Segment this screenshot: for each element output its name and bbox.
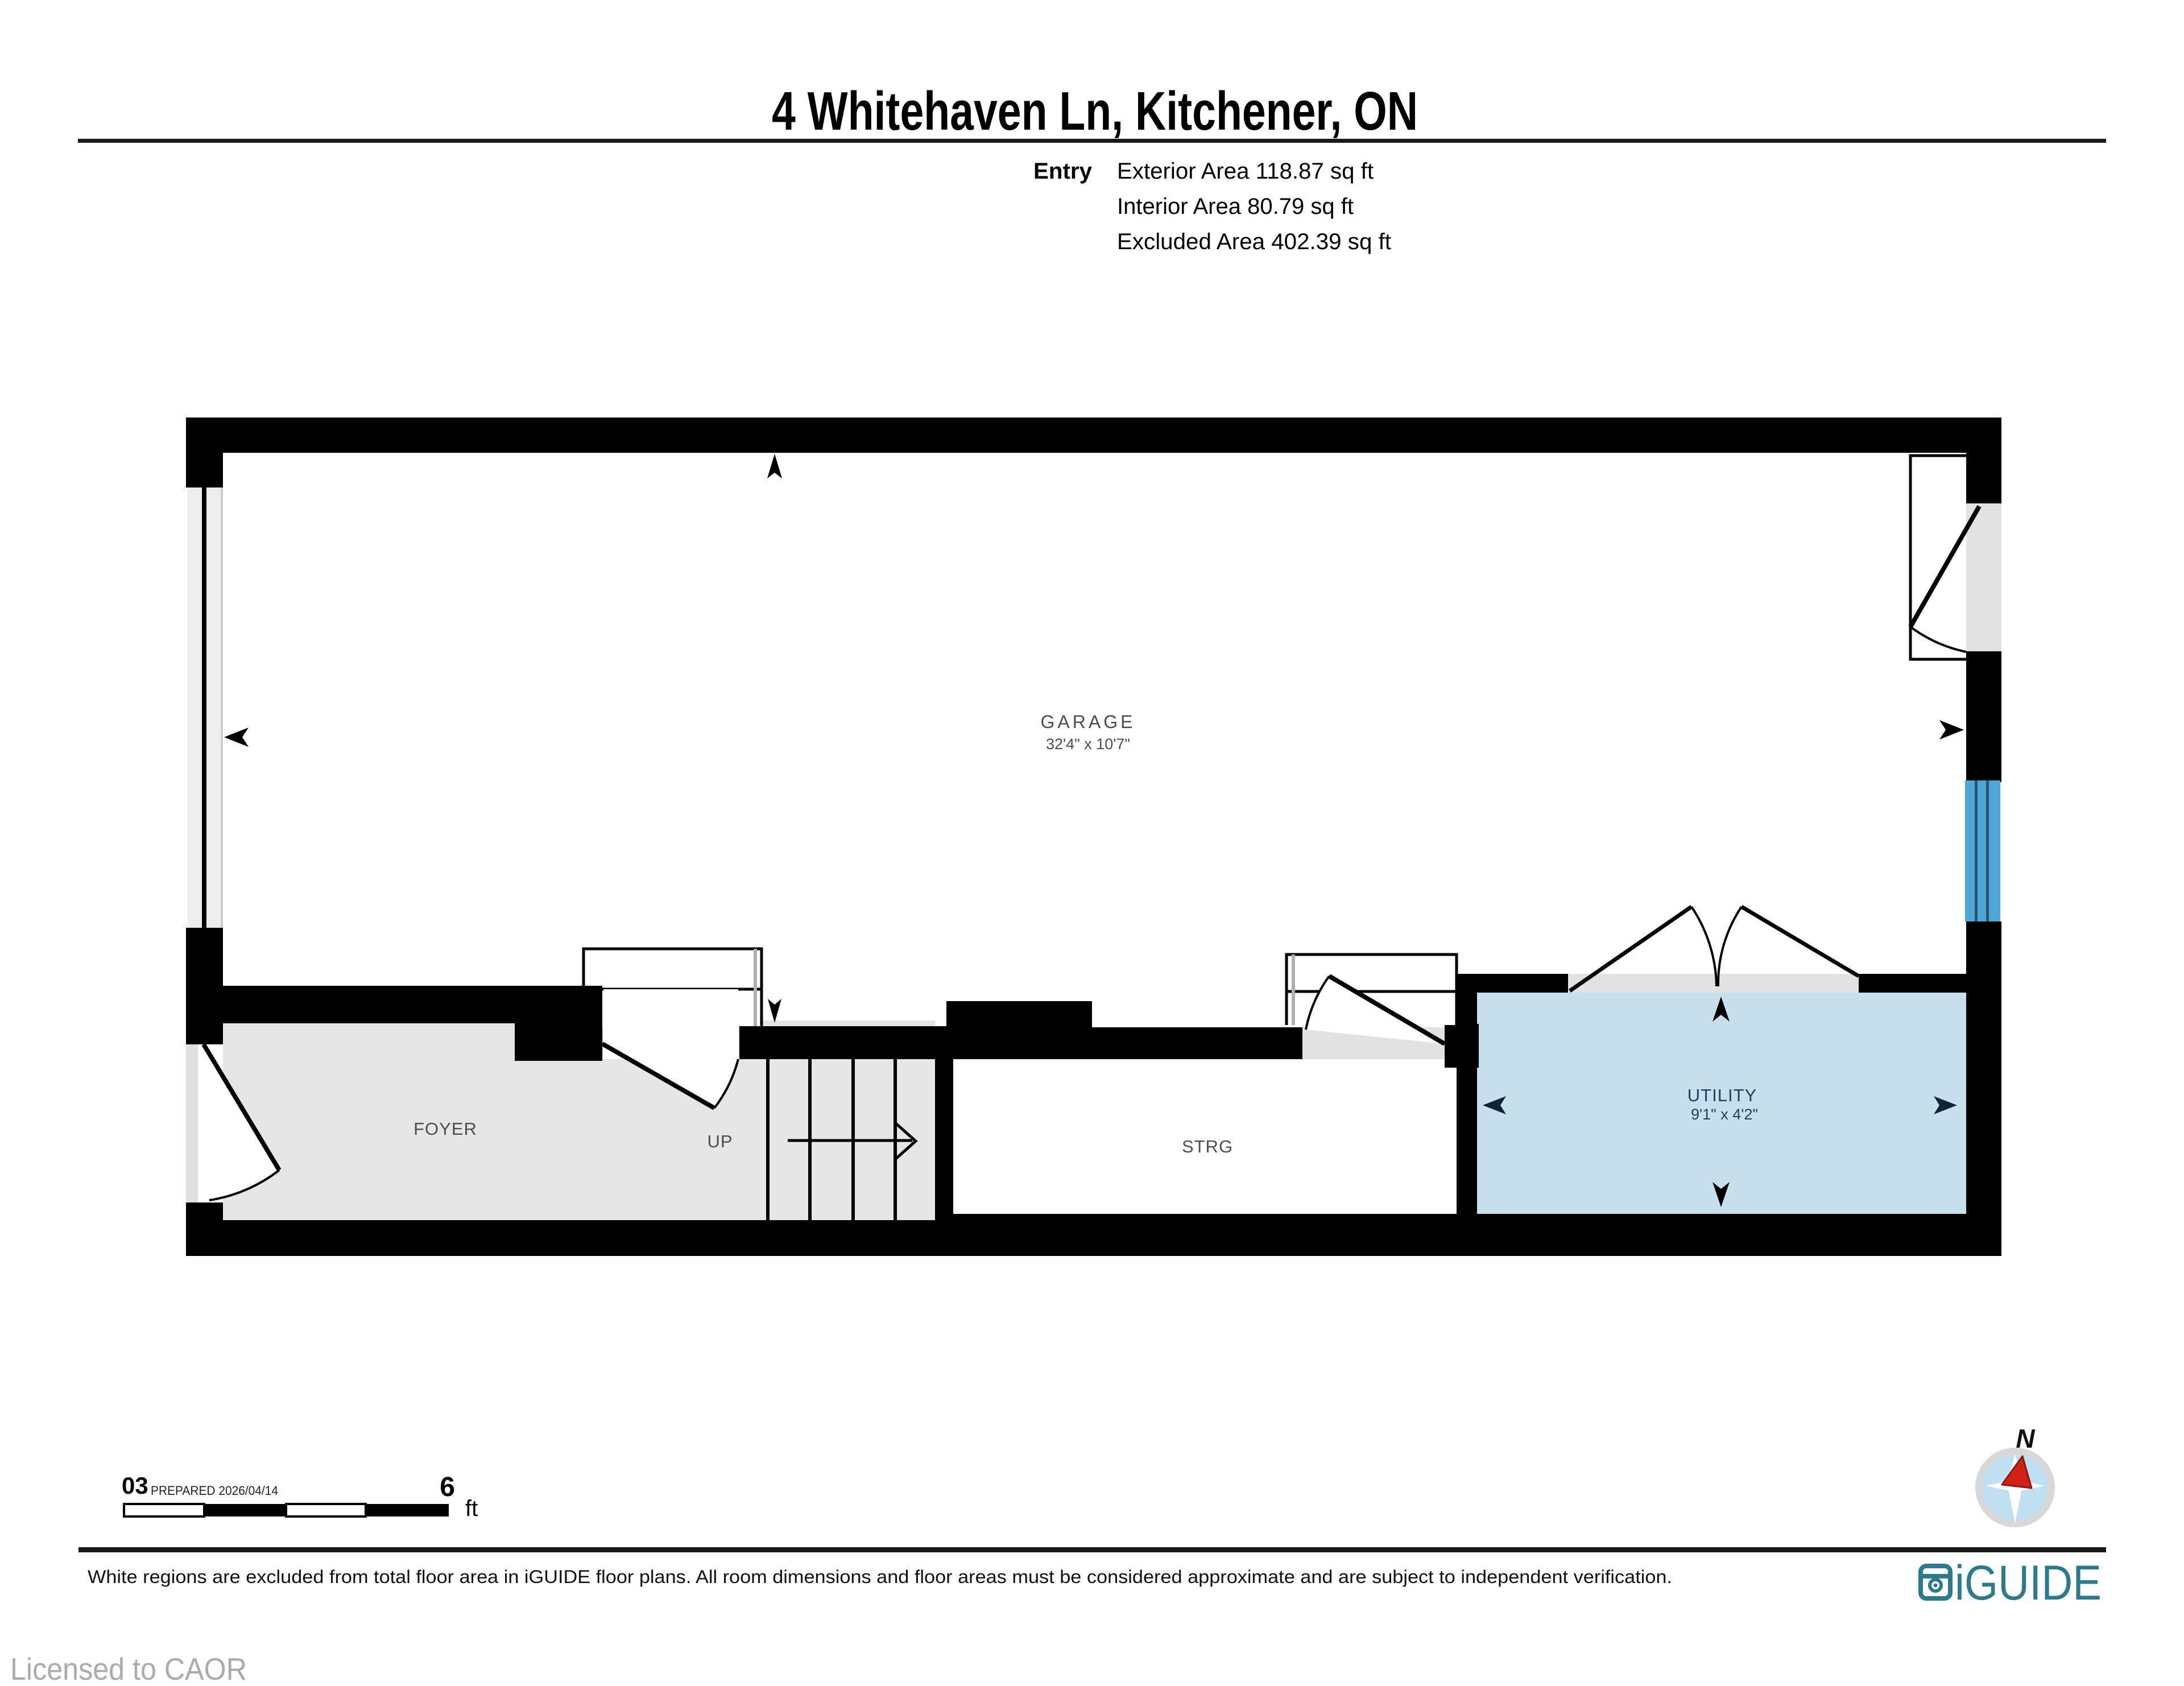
svg-text:iGUIDE: iGUIDE xyxy=(1955,1556,2102,1610)
svg-text:32'4" x 10'7": 32'4" x 10'7" xyxy=(1046,735,1130,753)
svg-text:Licensed to CAOR: Licensed to CAOR xyxy=(10,1651,247,1686)
svg-text:Interior Area 80.79 sq ft: Interior Area 80.79 sq ft xyxy=(1117,194,1354,219)
svg-text:Excluded Area 402.39 sq ft: Excluded Area 402.39 sq ft xyxy=(1117,229,1391,254)
svg-text:9'1" x 4'2": 9'1" x 4'2" xyxy=(1691,1106,1758,1123)
svg-text:ft: ft xyxy=(465,1496,478,1521)
svg-text:03: 03 xyxy=(122,1472,148,1499)
svg-text:GARAGE: GARAGE xyxy=(1041,712,1136,732)
svg-text:4 Whitehaven Ln, Kitchener, ON: 4 Whitehaven Ln, Kitchener, ON xyxy=(772,81,1418,142)
svg-text:UTILITY: UTILITY xyxy=(1687,1085,1757,1105)
svg-text:Entry: Entry xyxy=(1033,159,1093,184)
svg-text:STRG: STRG xyxy=(1182,1137,1233,1156)
svg-text:White regions are excluded fro: White regions are excluded from total fl… xyxy=(88,1567,1672,1587)
svg-text:PREPARED 2026/04/14: PREPARED 2026/04/14 xyxy=(151,1483,278,1498)
svg-text:Exterior Area 118.87 sq ft: Exterior Area 118.87 sq ft xyxy=(1117,159,1374,184)
svg-text:UP: UP xyxy=(707,1131,733,1151)
svg-text:FOYER: FOYER xyxy=(413,1119,477,1139)
svg-text:6: 6 xyxy=(440,1472,455,1502)
